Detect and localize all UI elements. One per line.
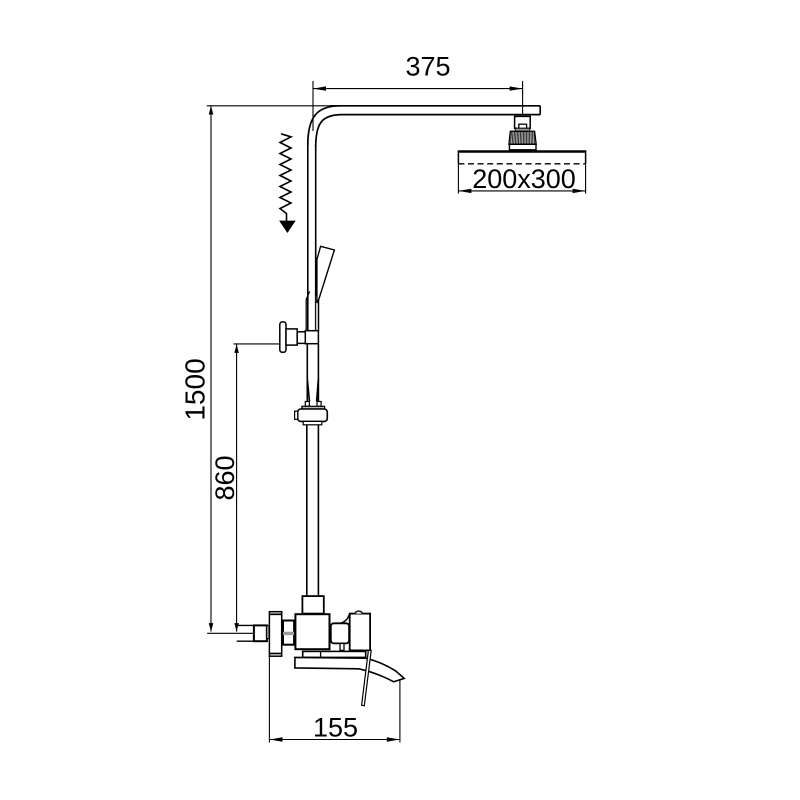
svg-text:1500: 1500 (180, 358, 211, 420)
svg-text:155: 155 (313, 713, 358, 743)
svg-text:375: 375 (405, 52, 450, 82)
svg-text:200x300: 200x300 (472, 164, 576, 194)
svg-text:860: 860 (210, 455, 240, 500)
